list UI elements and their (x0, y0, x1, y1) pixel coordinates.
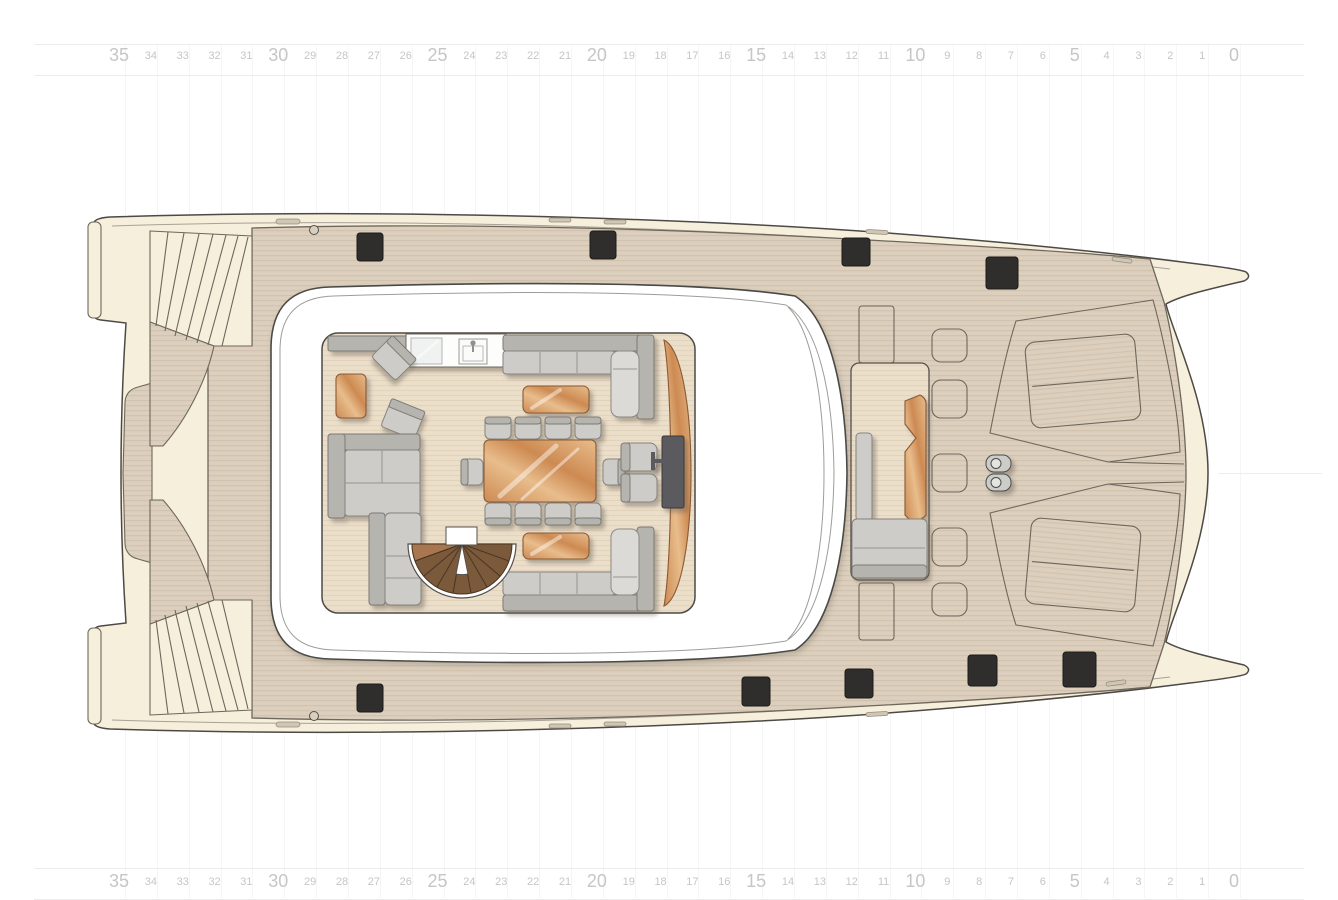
transom-trim-port (88, 222, 101, 318)
dining-chair (545, 417, 571, 439)
deck-cap (310, 226, 319, 235)
locker-hatch (932, 528, 967, 566)
cockpit-sunpad (852, 519, 927, 578)
cockpit-bench (856, 433, 872, 521)
deck-hatch (357, 233, 383, 261)
dining-chair (575, 417, 601, 439)
chaise-pad (611, 529, 639, 595)
deck-hatch (986, 257, 1018, 289)
deck-hatch (968, 655, 997, 686)
dining-chair (575, 503, 601, 525)
deck-plan-svg (0, 0, 1338, 900)
locker-hatch (932, 329, 967, 362)
deck-cap (310, 712, 319, 721)
stair-landing (446, 527, 477, 545)
cockpit-table (905, 395, 926, 521)
deck-hatch (1063, 652, 1096, 687)
deck-hatch (845, 669, 873, 698)
dining-chair (461, 459, 483, 485)
swim-platform (123, 383, 152, 563)
dining-chair (485, 417, 511, 439)
salon (322, 333, 695, 613)
chaise-pad (611, 351, 639, 417)
deck-hatch (742, 677, 770, 706)
deck-plan-canvas: 3534333231302928272625242322212019181716… (0, 0, 1338, 900)
transom-trim-starboard (88, 628, 101, 724)
locker-hatch (932, 380, 967, 418)
side-table (336, 374, 366, 418)
locker-hatch (932, 454, 967, 492)
dining-chair (515, 503, 541, 525)
deck-hatch (357, 684, 383, 712)
dining-chair (545, 503, 571, 525)
deck-hatch (842, 238, 870, 266)
dining-chair (485, 503, 511, 525)
deck-hatch (590, 231, 616, 259)
dining-chair (515, 417, 541, 439)
sunpad-port (1024, 333, 1141, 428)
sunpad-starboard (1024, 517, 1141, 612)
locker-hatch (932, 583, 967, 616)
sofa-mid-port (328, 434, 420, 518)
